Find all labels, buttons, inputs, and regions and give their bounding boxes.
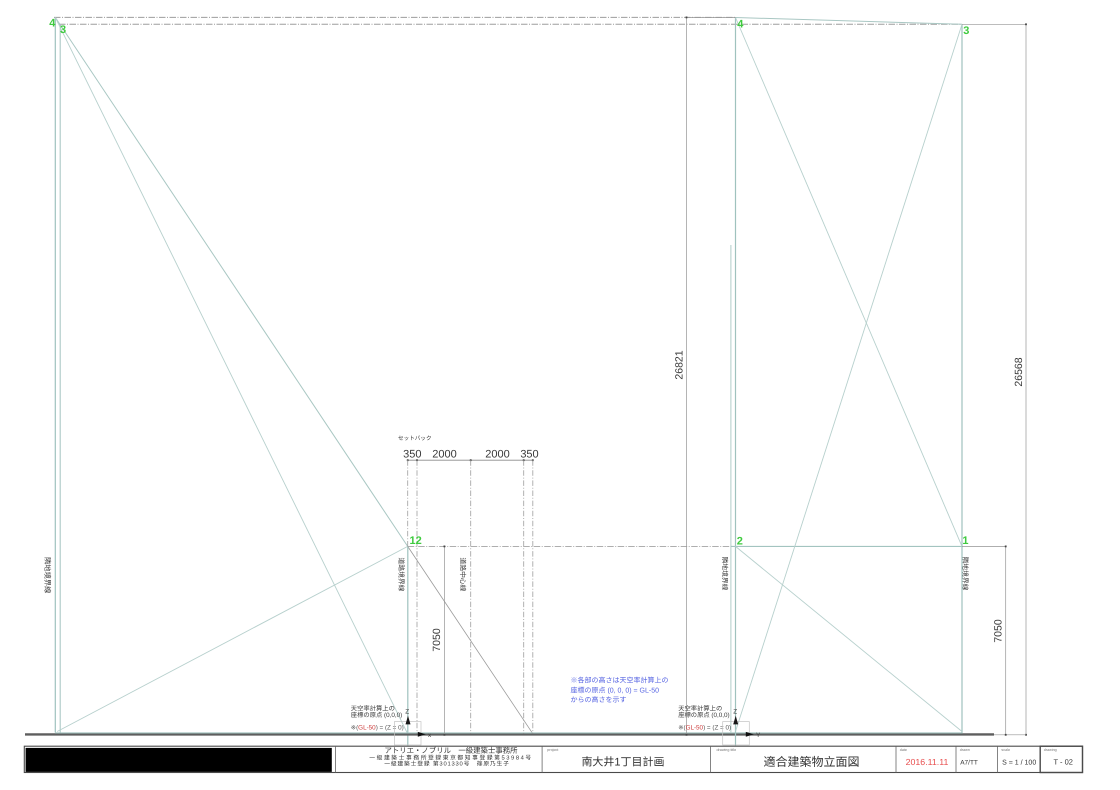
svg-text:350: 350 <box>403 448 421 460</box>
svg-text:Z: Z <box>733 709 737 716</box>
svg-text:4: 4 <box>49 18 56 30</box>
svg-text:座標の原点 (0,0,0): 座標の原点 (0,0,0) <box>678 711 729 719</box>
svg-text:2000: 2000 <box>432 448 456 460</box>
svg-text:A7/TT: A7/TT <box>960 760 978 767</box>
svg-text:T - 02: T - 02 <box>1053 758 1072 767</box>
svg-text:project: project <box>547 748 558 752</box>
svg-text:道路中心線: 道路中心線 <box>459 558 467 592</box>
svg-text:drawing: drawing <box>1044 748 1057 752</box>
svg-text:drawn: drawn <box>960 748 970 752</box>
svg-text:一級建築士事務所登録東京都知事登録第53984号: 一級建築士事務所登録東京都知事登録第53984号 <box>369 754 532 761</box>
svg-text:座標の原点 (0, 0, 0) = GL-50: 座標の原点 (0, 0, 0) = GL-50 <box>571 686 660 694</box>
svg-text:適合建築物立面図: 適合建築物立面図 <box>763 755 859 769</box>
svg-text:2: 2 <box>737 536 743 548</box>
svg-text:1: 1 <box>962 535 968 547</box>
svg-text:350: 350 <box>520 448 538 460</box>
svg-text:座標の原点 (0,0,0): 座標の原点 (0,0,0) <box>351 711 402 719</box>
svg-text:セットバック: セットバック <box>398 435 432 442</box>
svg-text:隣地境界線: 隣地境界線 <box>961 557 969 591</box>
svg-text:date: date <box>900 748 907 752</box>
svg-text:Y: Y <box>756 732 761 739</box>
svg-text:7050: 7050 <box>992 619 1004 643</box>
svg-text:26568: 26568 <box>1013 357 1025 386</box>
svg-text:隣地境界線: 隣地境界線 <box>720 557 728 591</box>
svg-text:2000: 2000 <box>485 448 509 460</box>
svg-text:Z: Z <box>405 709 409 716</box>
svg-text:3: 3 <box>963 25 969 37</box>
svg-text:S = 1 / 100: S = 1 / 100 <box>1002 759 1036 767</box>
svg-text:4: 4 <box>737 19 744 31</box>
svg-text:アトリエ・ノブリル 一級建築士事務所: アトリエ・ノブリル 一級建築士事務所 <box>384 746 518 755</box>
svg-text:道路境界線: 道路境界線 <box>397 558 405 592</box>
svg-text:からの高さを示す: からの高さを示す <box>571 696 627 704</box>
svg-text:南大井1丁目計画: 南大井1丁目計画 <box>581 755 664 768</box>
svg-text:隣地境界線: 隣地境界線 <box>43 557 52 594</box>
svg-text:7050: 7050 <box>431 628 443 652</box>
svg-text:一級建築士登録 第301330号 篠原乃生子: 一級建築士登録 第301330号 篠原乃生子 <box>384 761 510 768</box>
svg-text:drawing title: drawing title <box>717 748 737 752</box>
svg-text:12: 12 <box>410 535 422 547</box>
svg-text:※(GL-50) = (Z = 0): ※(GL-50) = (Z = 0) <box>351 725 404 732</box>
svg-text:scale: scale <box>1001 748 1010 752</box>
svg-text:26821: 26821 <box>673 350 685 379</box>
svg-text:2016.11.11: 2016.11.11 <box>906 757 949 767</box>
svg-text:3: 3 <box>60 24 66 36</box>
svg-text:※(GL-50) = (Z = 0): ※(GL-50) = (Z = 0) <box>678 725 731 732</box>
svg-text:※各部の高さは天空率計算上の: ※各部の高さは天空率計算上の <box>571 677 669 685</box>
